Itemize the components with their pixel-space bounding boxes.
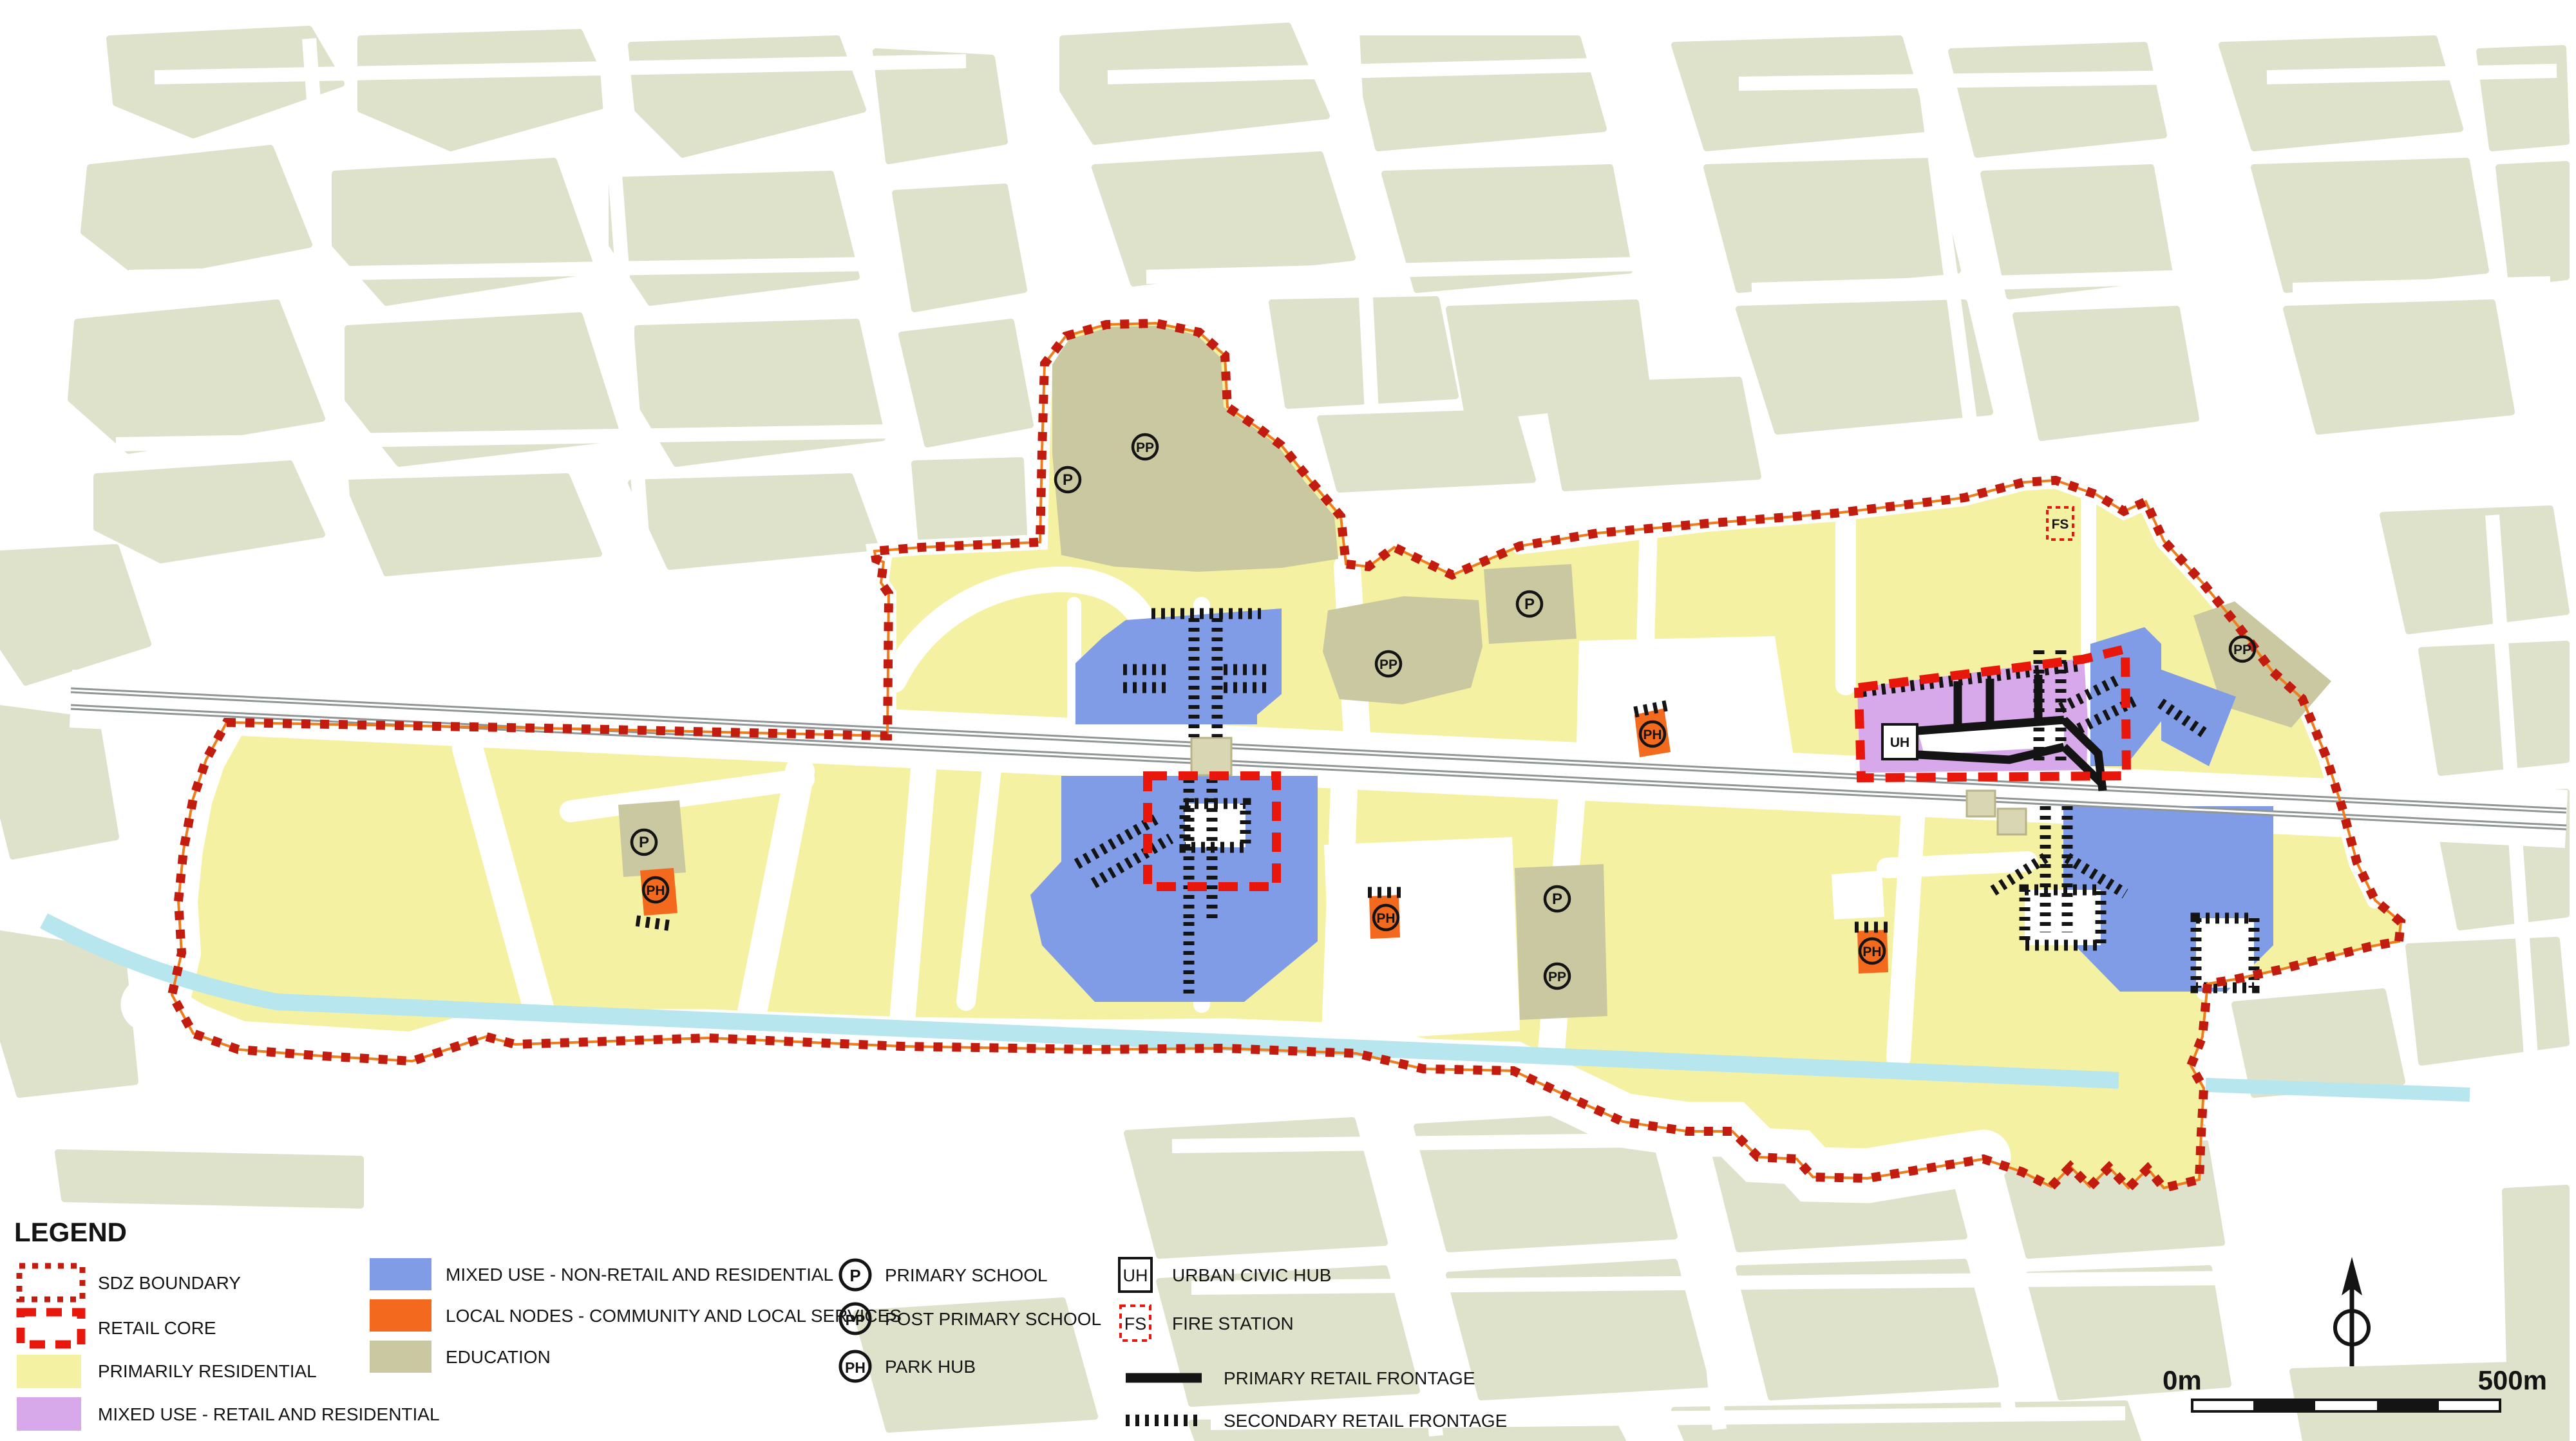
map-marker-uh: UH (1882, 724, 1917, 759)
legend-glyph-fs: FS (1124, 1314, 1147, 1333)
legend-swatch-retail-core (21, 1312, 81, 1344)
svg-text:PH: PH (1376, 911, 1395, 926)
legend-label-mixed-use-retail: MIXED USE - RETAIL AND RESIDENTIAL (98, 1404, 440, 1424)
legend-label-local-nodes: LOCAL NODES - COMMUNITY AND LOCAL SERVIC… (446, 1306, 902, 1326)
legend-label-mixed-use-non-retail: MIXED USE - NON-RETAIL AND RESIDENTIAL (446, 1265, 833, 1285)
svg-text:PH: PH (1862, 945, 1881, 959)
svg-text:PP: PP (1548, 970, 1566, 984)
legend-swatch-mixed-use-retail (17, 1397, 81, 1431)
svg-text:PP: PP (2233, 643, 2251, 657)
legend-glyph-uh: UH (1123, 1266, 1148, 1285)
svg-text:P: P (639, 834, 649, 851)
legend-label-urban-civic-hub: URBAN CIVIC HUB (1172, 1265, 1331, 1285)
svg-text:PH: PH (1643, 728, 1662, 742)
legend-swatch-local-nodes (370, 1299, 431, 1332)
svg-text:P: P (1063, 471, 1073, 489)
legend-glyph-p: P (849, 1266, 860, 1285)
scale-end-label: 500m (2478, 1365, 2547, 1395)
legend-swatch-mixed-use-non-retail (370, 1258, 431, 1290)
svg-text:P: P (1524, 596, 1535, 613)
svg-text:PH: PH (646, 883, 665, 898)
legend-swatch-education (370, 1341, 431, 1373)
legend-glyph-pp: PP (846, 1312, 866, 1328)
north-arrow (2335, 1257, 2369, 1366)
legend-label-primary-school: PRIMARY SCHOOL (885, 1265, 1048, 1285)
legend-label-retail-core: RETAIL CORE (98, 1318, 216, 1338)
legend-label-park-hub: PARK HUB (885, 1357, 976, 1377)
svg-text:FS: FS (2052, 517, 2069, 532)
svg-text:UH: UH (1890, 735, 1909, 750)
legend-label-fire-station: FIRE STATION (1172, 1314, 1294, 1333)
legend-swatch-sdz-boundary (19, 1266, 82, 1299)
legend-label-primary-frontage: PRIMARY RETAIL FRONTAGE (1224, 1368, 1475, 1388)
zoning-map-page: PPPPPPPHPPHPHPPPPHPPUHFS LEGEND SDZ BOUN… (0, 0, 2576, 1441)
legend-glyph-ph: PH (845, 1359, 866, 1376)
sdz-zoning-map: PPPPPPPHPPHPHPPPPHPPUHFS LEGEND SDZ BOUN… (0, 0, 2576, 1441)
scale-start-label: 0m (2163, 1365, 2202, 1395)
legend-label-secondary-frontage: SECONDARY RETAIL FRONTAGE (1224, 1411, 1507, 1431)
svg-text:PP: PP (1379, 657, 1397, 672)
legend-title: LEGEND (14, 1217, 127, 1247)
svg-text:P: P (1552, 890, 1562, 908)
legend-label-primarily-residential: PRIMARILY RESIDENTIAL (98, 1361, 317, 1381)
legend-label-education: EDUCATION (446, 1347, 551, 1367)
legend-swatch-primarily-residential (17, 1355, 81, 1388)
legend-label-post-primary-school: POST PRIMARY SCHOOL (885, 1309, 1101, 1329)
svg-text:PP: PP (1136, 440, 1154, 455)
legend-label-sdz-boundary: SDZ BOUNDARY (98, 1273, 241, 1293)
